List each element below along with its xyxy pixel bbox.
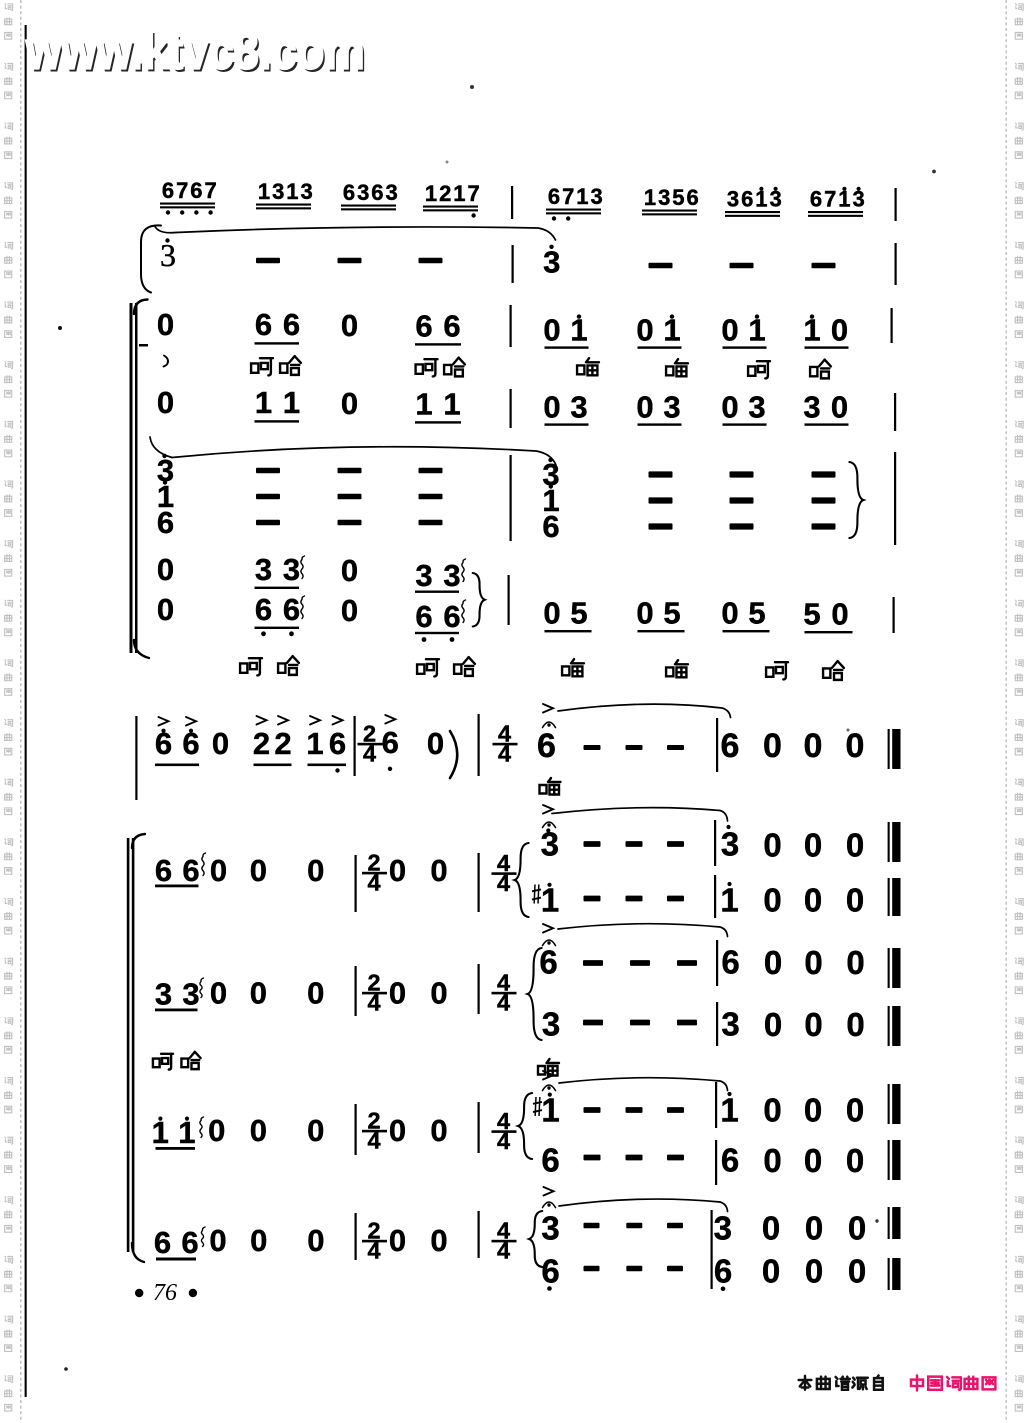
svg-text:05: 05 <box>636 596 680 631</box>
svg-text:0: 0 <box>341 553 358 588</box>
svg-text:66: 66 <box>415 599 460 634</box>
svg-text:6: 6 <box>714 1253 732 1290</box>
svg-text:4: 4 <box>367 870 380 896</box>
svg-text:000: 000 <box>763 827 864 864</box>
svg-text:000: 000 <box>763 727 864 765</box>
svg-text:1356: 1356 <box>644 185 699 210</box>
svg-text:1: 1 <box>720 882 738 919</box>
svg-text:4: 4 <box>367 1238 380 1264</box>
svg-text:3: 3 <box>542 1006 560 1043</box>
svg-text:3: 3 <box>714 1210 732 1247</box>
svg-text:01: 01 <box>721 313 765 348</box>
svg-text:000: 000 <box>210 853 325 888</box>
svg-text:03: 03 <box>543 390 587 425</box>
svg-text:0: 0 <box>341 308 358 343</box>
svg-text:3: 3 <box>541 826 559 863</box>
svg-text:3613: 3613 <box>727 186 782 211</box>
svg-text:4: 4 <box>497 870 510 896</box>
svg-text:3: 3 <box>543 245 560 280</box>
svg-text:03: 03 <box>636 390 680 425</box>
svg-text:30: 30 <box>803 390 848 425</box>
svg-text:66: 66 <box>155 853 200 888</box>
svg-text:76: 76 <box>153 1280 177 1306</box>
svg-text:6: 6 <box>382 725 399 760</box>
svg-text:22: 22 <box>253 726 292 761</box>
svg-text:6: 6 <box>541 1253 559 1290</box>
svg-text:0: 0 <box>341 386 358 421</box>
svg-text:0: 0 <box>157 592 174 627</box>
svg-text:000: 000 <box>764 944 865 981</box>
svg-text:33: 33 <box>155 977 200 1012</box>
svg-text:000: 000 <box>764 1006 865 1043</box>
svg-text:03: 03 <box>721 390 765 425</box>
svg-text:50: 50 <box>803 597 848 632</box>
svg-text:10: 10 <box>803 313 848 348</box>
svg-text:00: 00 <box>389 1223 448 1258</box>
svg-text:0: 0 <box>157 307 174 342</box>
svg-text:6767: 6767 <box>162 178 217 203</box>
svg-text:6: 6 <box>721 727 740 765</box>
svg-text:000: 000 <box>763 1142 864 1179</box>
svg-text:05: 05 <box>721 596 765 631</box>
svg-text:000: 000 <box>208 1113 324 1148</box>
svg-text:6: 6 <box>157 505 174 540</box>
svg-text:33: 33 <box>255 552 300 587</box>
svg-text:6: 6 <box>542 509 559 544</box>
svg-text:0: 0 <box>212 726 229 761</box>
svg-text:11: 11 <box>255 385 300 420</box>
svg-text:01: 01 <box>543 313 587 348</box>
svg-text:4: 4 <box>497 990 510 1016</box>
svg-text:4: 4 <box>497 1128 510 1154</box>
svg-text:66: 66 <box>255 307 300 342</box>
svg-text:1: 1 <box>541 882 559 919</box>
svg-text:0: 0 <box>157 385 174 420</box>
svg-text:01: 01 <box>636 313 680 348</box>
svg-text:4: 4 <box>367 1128 380 1154</box>
svg-text:05: 05 <box>543 596 587 631</box>
svg-text:6: 6 <box>721 1142 739 1179</box>
svg-text:0: 0 <box>427 726 444 761</box>
svg-text:6: 6 <box>721 944 739 981</box>
svg-text:00: 00 <box>389 1113 448 1148</box>
svg-text:66: 66 <box>154 1225 199 1260</box>
svg-text:3: 3 <box>721 826 739 863</box>
svg-text:6363: 6363 <box>343 180 398 205</box>
svg-text:000: 000 <box>762 1210 866 1247</box>
svg-text:11: 11 <box>415 387 460 422</box>
svg-text:1217: 1217 <box>425 181 480 206</box>
svg-text:1: 1 <box>720 1092 738 1129</box>
svg-text:000: 000 <box>763 1092 864 1129</box>
svg-text:4: 4 <box>497 1238 510 1264</box>
svg-text:4: 4 <box>367 990 380 1016</box>
svg-text:1313: 1313 <box>258 179 313 204</box>
svg-text:6: 6 <box>539 944 557 981</box>
svg-text:6: 6 <box>541 1142 559 1179</box>
svg-text:000: 000 <box>763 882 864 919</box>
svg-text:000: 000 <box>209 1223 324 1258</box>
svg-text:6713: 6713 <box>810 186 865 211</box>
svg-text:0: 0 <box>341 593 358 628</box>
svg-text:6: 6 <box>537 727 556 765</box>
svg-text:11: 11 <box>152 1115 196 1150</box>
svg-text:3: 3 <box>541 1210 559 1247</box>
svg-text:0: 0 <box>157 552 174 587</box>
svg-text:000: 000 <box>762 1253 866 1290</box>
svg-text:66: 66 <box>255 592 300 627</box>
svg-text:00: 00 <box>389 976 448 1011</box>
svg-text:3: 3 <box>721 1006 739 1043</box>
svg-text:00: 00 <box>389 853 448 888</box>
svg-text:4: 4 <box>498 741 511 767</box>
svg-text:4: 4 <box>363 741 376 767</box>
svg-text:66: 66 <box>415 309 460 344</box>
svg-text:000: 000 <box>210 976 325 1011</box>
svg-text:16: 16 <box>306 726 346 761</box>
svg-text:6713: 6713 <box>548 184 603 209</box>
svg-text:www.ktvc8.com: www.ktvc8.com <box>25 21 365 80</box>
svg-text:1: 1 <box>541 1092 559 1129</box>
svg-text:33: 33 <box>415 558 460 593</box>
